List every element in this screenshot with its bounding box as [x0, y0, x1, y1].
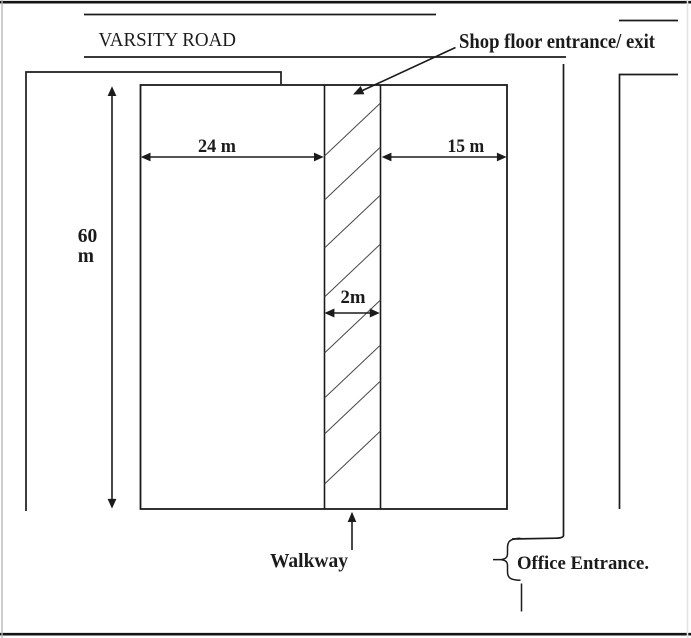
svg-text:Walkway: Walkway [270, 550, 348, 572]
svg-text:60: 60 [78, 226, 98, 247]
svg-text:24 m: 24 m [198, 137, 237, 157]
svg-text:Office Entrance.: Office Entrance. [517, 553, 649, 574]
svg-text:2m: 2m [341, 287, 366, 308]
svg-text:Shop floor entrance/ exit: Shop floor entrance/ exit [459, 29, 655, 53]
svg-text:m: m [78, 246, 94, 267]
svg-text:VARSITY ROAD: VARSITY ROAD [99, 29, 237, 51]
svg-text:15 m: 15 m [448, 137, 485, 157]
